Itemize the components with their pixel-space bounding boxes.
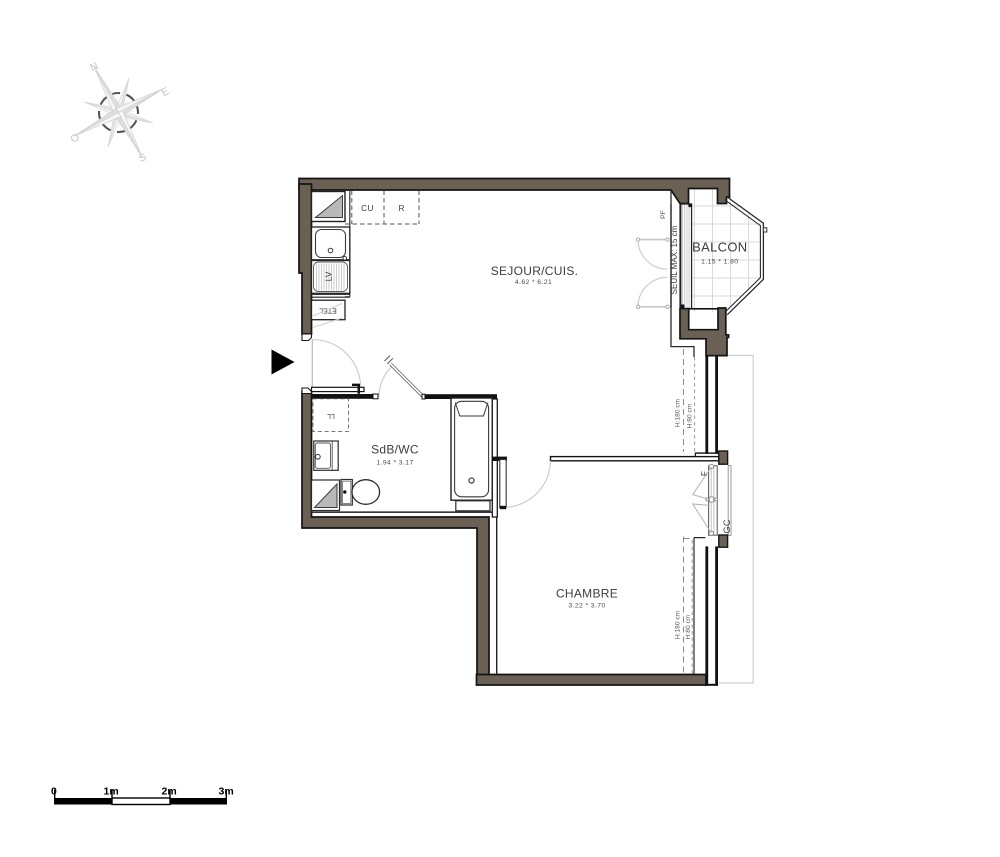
svg-text:F: F [700,471,709,476]
svg-text:3m: 3m [219,786,234,798]
svg-text:1.94 * 3.17: 1.94 * 3.17 [376,460,413,467]
svg-text:H:180 cm: H:180 cm [675,398,682,427]
svg-text:2m: 2m [162,786,177,798]
svg-text:SdB/WC: SdB/WC [371,443,419,457]
svg-text:1.15 * 1.80: 1.15 * 1.80 [701,259,738,266]
svg-text:1m: 1m [104,786,119,798]
svg-text:BALCON: BALCON [692,240,747,255]
svg-text:R: R [399,204,405,213]
svg-text:CHAMBRE: CHAMBRE [556,587,618,601]
svg-text:LV: LV [323,271,333,281]
svg-text:SEUIL MAX: 15 cm: SEUIL MAX: 15 cm [670,225,679,294]
svg-text:0: 0 [51,786,57,798]
svg-text:PF: PF [660,210,667,219]
svg-text:H:80 cm: H:80 cm [685,614,692,639]
svg-text:SEJOUR/CUIS.: SEJOUR/CUIS. [491,264,579,278]
svg-text:H:180 cm: H:180 cm [675,610,682,639]
svg-text:CU: CU [361,204,374,213]
svg-text:4.62 * 6.21: 4.62 * 6.21 [515,279,552,286]
svg-text:3.22 * 3.70: 3.22 * 3.70 [568,603,605,610]
svg-text:GC: GC [722,519,733,533]
svg-text:H:80 cm: H:80 cm [687,403,694,428]
svg-text:LL: LL [327,412,335,419]
